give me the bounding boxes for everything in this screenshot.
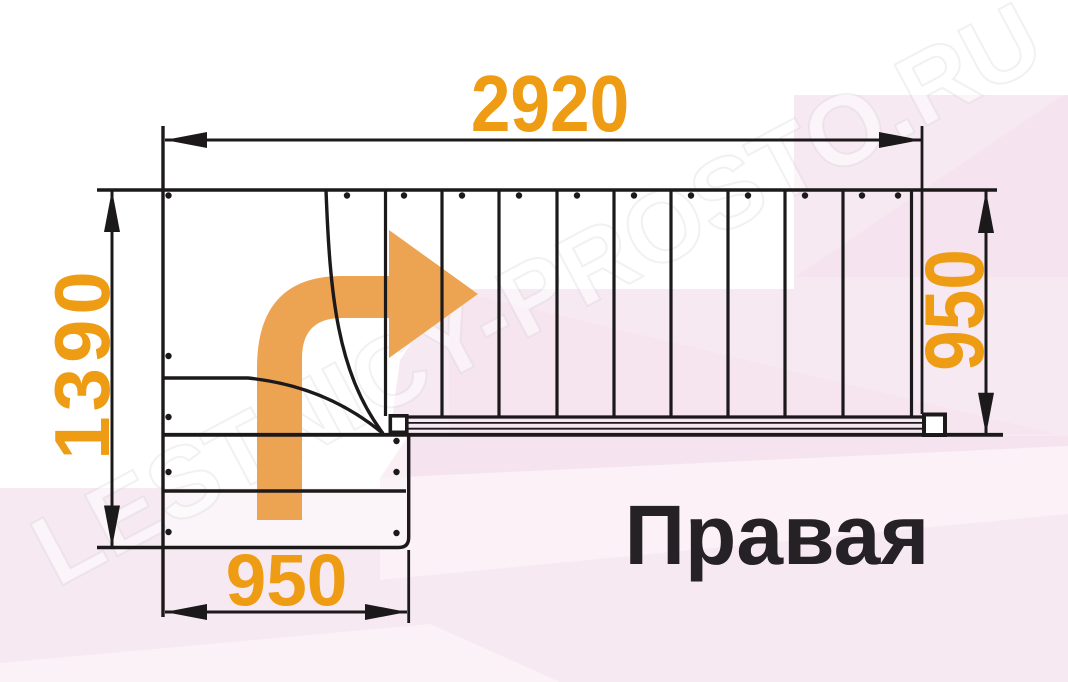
svg-text:1390: 1390	[38, 266, 126, 460]
svg-text:950: 950	[907, 249, 1001, 371]
svg-text:Правая: Правая	[625, 488, 930, 582]
svg-text:950: 950	[226, 541, 348, 622]
svg-text:2920: 2920	[471, 59, 629, 149]
